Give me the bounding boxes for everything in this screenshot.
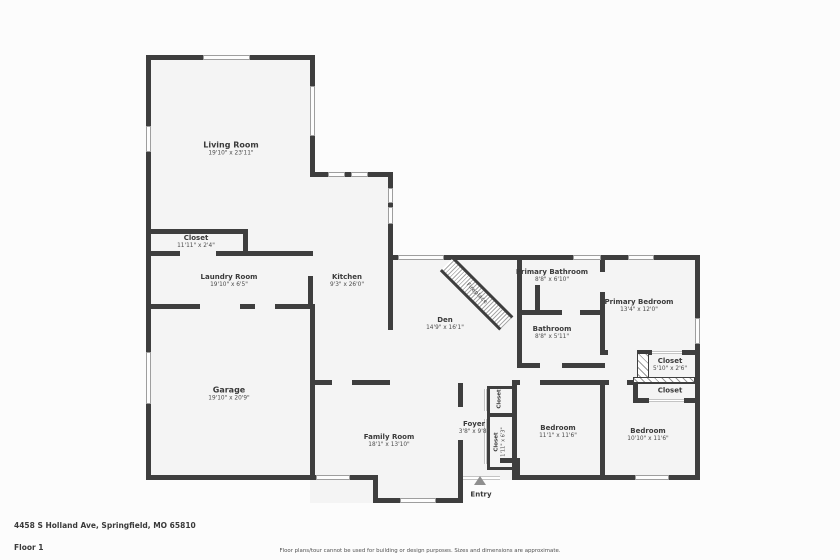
room-dims: 5'10" x 2'6"	[653, 366, 687, 373]
room-name: Foyer	[459, 420, 489, 429]
room-name: Closet	[658, 387, 683, 396]
room-dims: 19'10" x 6'5"	[201, 282, 258, 289]
room-name: Den	[426, 316, 464, 325]
foyer-closet-top-label: Closet	[497, 389, 504, 408]
wall-segment	[275, 304, 313, 309]
window	[310, 86, 315, 136]
wall-segment	[458, 440, 463, 503]
hatched-wall	[633, 377, 695, 383]
room-dims: 13'4" x 12'0"	[605, 307, 674, 314]
hatched-wall	[637, 353, 649, 379]
den-label: Den 14'9" x 16'1"	[426, 316, 464, 332]
room-name: Family Room	[364, 433, 415, 442]
room-dims: 8'8" x 5'11"	[533, 334, 572, 341]
room-name: Garage	[208, 385, 249, 395]
garage-label: Garage 19'10" x 20'9"	[208, 385, 249, 402]
room-dims: 3'8" x 9'8"	[459, 429, 489, 436]
window	[398, 255, 444, 260]
window	[388, 207, 393, 224]
disclaimer-text: Floor plans/tour cannot be used for buil…	[0, 548, 840, 554]
wall-segment	[240, 304, 255, 309]
family-room-label: Family Room 18'1" x 13'10"	[364, 433, 415, 449]
room-name: Bathroom	[533, 325, 572, 334]
wall-segment	[310, 380, 332, 385]
window	[351, 172, 368, 177]
living-room-label: Living Room 19'10" x 23'11"	[203, 140, 259, 157]
window	[635, 475, 669, 480]
room-dims: 9'3" x 26'0"	[330, 282, 364, 289]
wall-segment	[458, 383, 463, 407]
wall-segment	[562, 363, 605, 368]
room-dims: 10'10" x 11'6"	[627, 436, 668, 443]
door-opening	[649, 399, 684, 402]
room-name: Kitchen	[330, 273, 364, 282]
window	[388, 188, 393, 203]
primary-bedroom-label: Primary Bedroom 13'4" x 12'0"	[605, 298, 674, 314]
window	[695, 318, 700, 344]
room-name: Bedroom	[627, 427, 668, 436]
room-dims: 19'10" x 20'9"	[208, 395, 249, 402]
hall-closet-label: Closet 11'11" x 2'4"	[177, 234, 215, 250]
room-dims: 19'10" x 23'11"	[203, 150, 259, 157]
window	[146, 352, 151, 404]
window	[400, 498, 436, 503]
wall-segment	[146, 251, 180, 256]
bedroom-middle-label: Bedroom 11'1" x 11'6"	[539, 424, 577, 440]
wall-segment	[352, 380, 390, 385]
wall-segment	[388, 260, 393, 330]
wall-segment	[633, 398, 649, 403]
door-opening	[484, 389, 487, 411]
wall-segment	[540, 380, 605, 385]
room-dims: 11'11" x 2'4"	[177, 243, 215, 250]
wall-segment	[216, 251, 313, 256]
room-dims: 18'1" x 13'10"	[364, 442, 415, 449]
wall-segment	[695, 255, 700, 480]
wall-segment	[487, 413, 514, 417]
room-name: Bedroom	[539, 424, 577, 433]
floor-plan: Fireplace Living Room 19'10" x 23'11" Cl…	[0, 0, 840, 560]
room-name: Living Room	[203, 140, 259, 150]
primary-closet-label: Closet 5'10" x 2'6"	[653, 357, 687, 373]
wall-segment	[600, 350, 608, 355]
room-name: Primary Bathroom	[516, 268, 588, 277]
room-name: Laundry Room	[201, 273, 258, 282]
window	[203, 55, 250, 60]
bedroom-right-label: Bedroom 10'10" x 11'6"	[627, 427, 668, 443]
foyer-label: Foyer 3'8" x 9'8"	[459, 420, 489, 436]
wall-segment	[600, 380, 605, 480]
room-fill	[146, 55, 315, 480]
kitchen-label: Kitchen 9'3" x 26'0"	[330, 273, 364, 289]
room-name: Closet	[653, 357, 687, 366]
wall-segment	[310, 304, 315, 480]
window	[628, 255, 654, 260]
room-name: Closet	[177, 234, 215, 243]
entry-label: Entry	[470, 491, 491, 500]
wall-segment	[515, 475, 700, 480]
door-opening	[652, 351, 682, 354]
window	[328, 172, 345, 177]
primary-bathroom-label: Primary Bathroom 8'8" x 6'10"	[516, 268, 588, 284]
window	[316, 475, 350, 480]
wall-segment	[682, 350, 700, 355]
bathroom-label: Bathroom 8'8" x 5'11"	[533, 325, 572, 341]
window	[573, 255, 601, 260]
wall-segment	[517, 363, 540, 368]
wall-segment	[535, 285, 540, 315]
laundry-room-label: Laundry Room 19'10" x 6'5"	[201, 273, 258, 289]
room-name: Primary Bedroom	[605, 298, 674, 307]
bedroom-closet-label: Closet	[658, 387, 683, 396]
foyer-closet-bottom-label: Closet 1'11" x 6'3"	[493, 427, 506, 456]
address-text: 4458 S Holland Ave, Springfield, MO 6581…	[14, 521, 196, 530]
wall-segment	[684, 398, 700, 403]
wall-segment	[146, 55, 151, 480]
entry-arrow-icon	[474, 476, 486, 485]
wall-segment	[487, 467, 514, 470]
room-dims: 1'11" x 6'3"	[500, 427, 506, 456]
window	[146, 126, 151, 152]
room-name: Closet	[493, 427, 500, 456]
room-name: Closet	[497, 389, 504, 408]
wall-segment	[512, 380, 517, 480]
room-dims: 11'1" x 11'6"	[539, 433, 577, 440]
wall-segment	[146, 304, 200, 309]
room-dims: 14'9" x 16'1"	[426, 325, 464, 332]
room-dims: 8'8" x 6'10"	[516, 277, 588, 284]
room-name: Entry	[470, 491, 491, 500]
